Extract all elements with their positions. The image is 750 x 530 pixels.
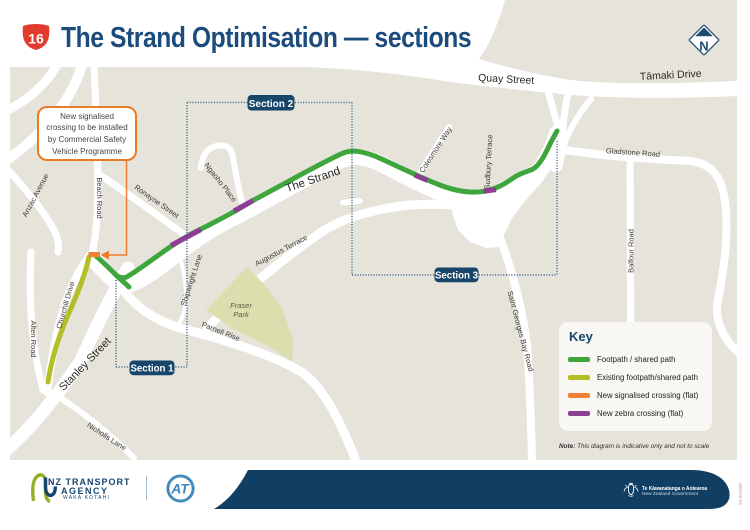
svg-text:Section 3: Section 3 <box>435 271 479 282</box>
svg-text:Alten Road: Alten Road <box>29 320 38 357</box>
svg-text:Section 1: Section 1 <box>130 364 174 375</box>
svg-text:Section 2: Section 2 <box>249 99 294 110</box>
svg-text:N: N <box>699 39 708 54</box>
svg-text:Quay Street: Quay Street <box>478 72 535 87</box>
svg-text:AT: AT <box>170 481 190 497</box>
svg-text:Balfour Road: Balfour Road <box>627 229 636 273</box>
svg-text:Fraser: Fraser <box>230 301 252 310</box>
svg-text:Park: Park <box>233 310 250 319</box>
svg-text:Beach Road: Beach Road <box>95 177 104 218</box>
svg-text:16: 16 <box>28 30 44 46</box>
